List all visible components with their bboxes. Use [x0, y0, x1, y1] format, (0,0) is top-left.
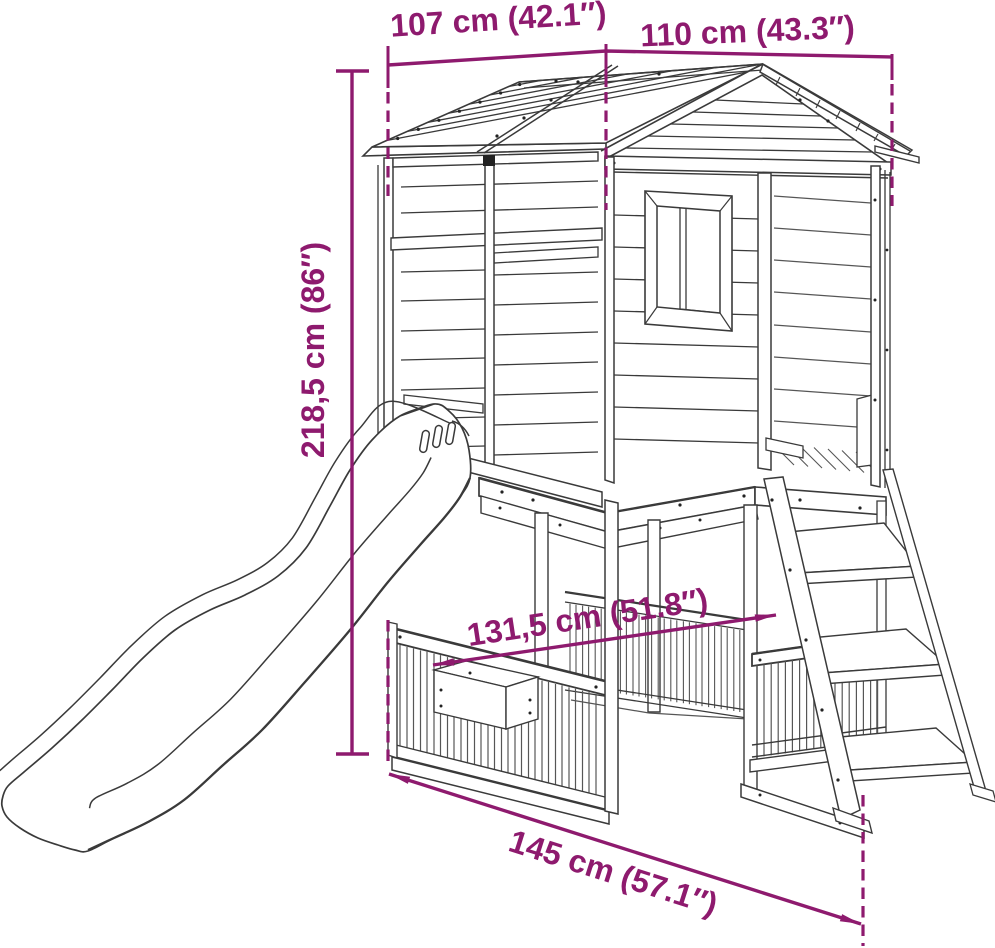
svg-text:218,5 cm (86″): 218,5 cm (86″)	[295, 242, 331, 458]
